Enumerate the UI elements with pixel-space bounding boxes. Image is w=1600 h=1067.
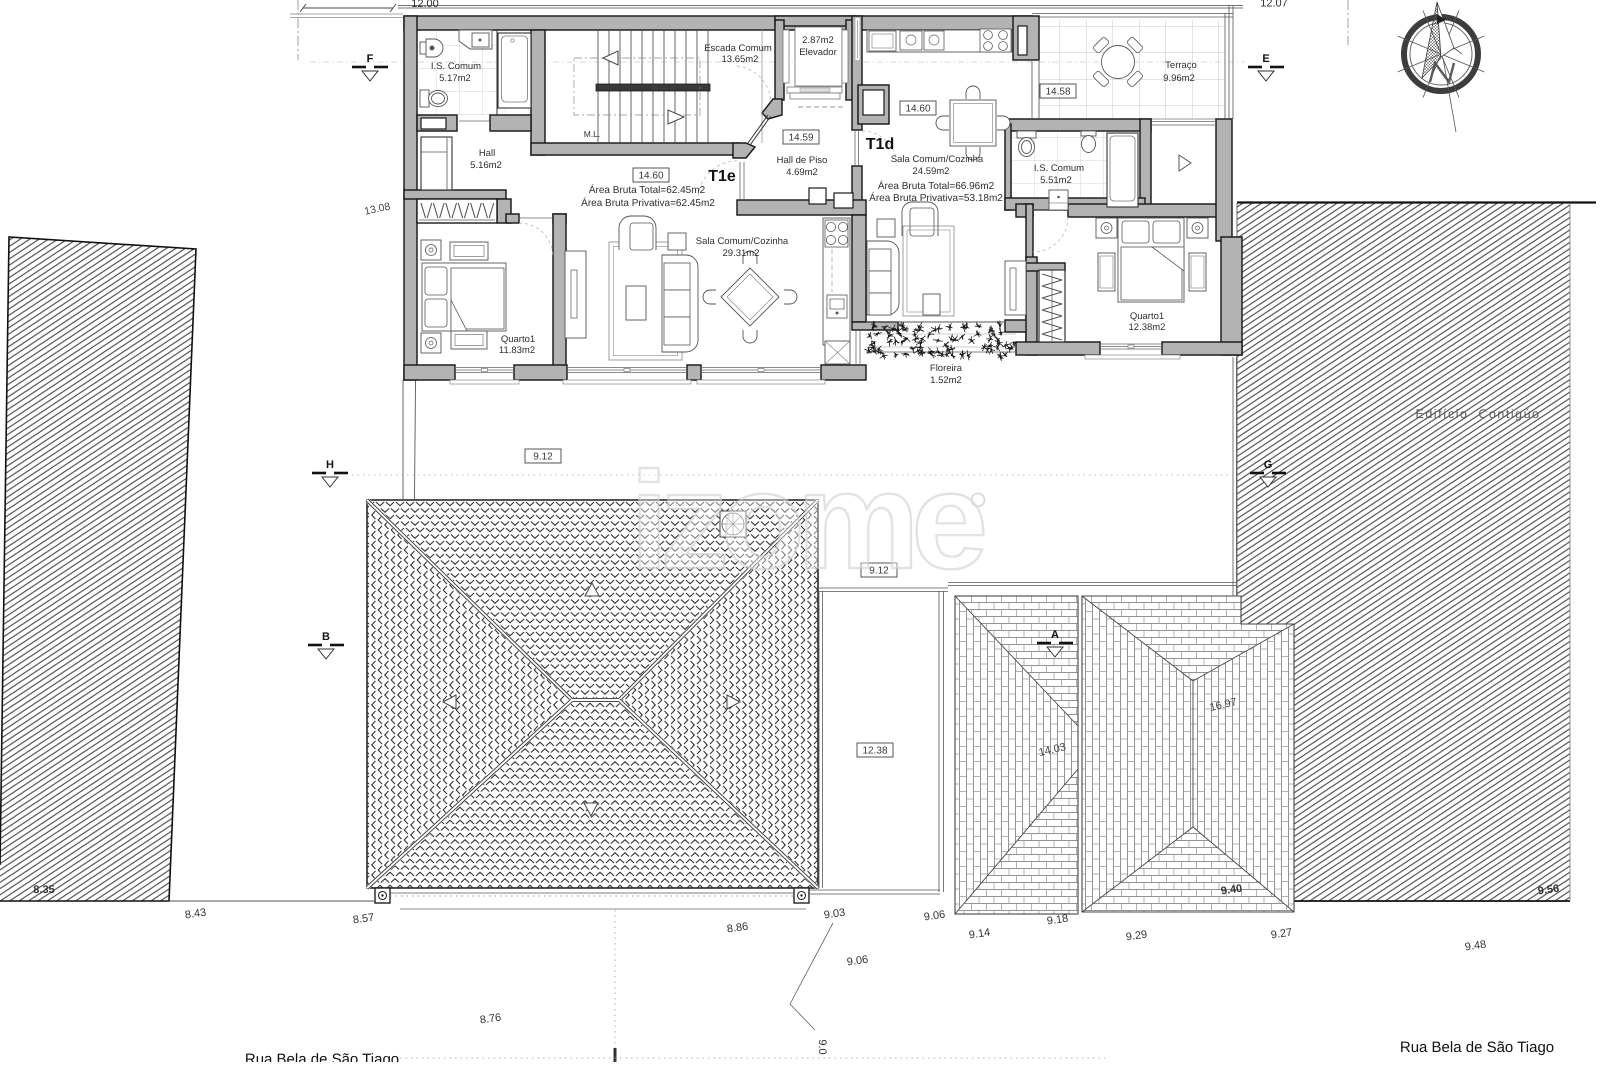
- svg-text:E: E: [1262, 53, 1269, 65]
- svg-text:Hall de Piso: Hall de Piso: [777, 155, 828, 166]
- svg-text:Edifício Contigúo: Edifício Contigúo: [1416, 407, 1541, 421]
- svg-text:9.0: 9.0: [816, 1039, 828, 1054]
- svg-text:11.83m2: 11.83m2: [499, 345, 535, 356]
- svg-text:G: G: [1264, 459, 1273, 471]
- svg-text:9.96m2: 9.96m2: [1163, 73, 1195, 84]
- svg-text:9.12: 9.12: [533, 452, 553, 463]
- svg-text:14.60: 14.60: [905, 104, 930, 115]
- svg-text:B: B: [322, 631, 330, 643]
- svg-text:5.51m2: 5.51m2: [1040, 175, 1072, 186]
- svg-text:Rua Bela de São Tiago: Rua Bela de São Tiago: [1400, 1039, 1554, 1056]
- svg-text:Sala Comum/Cozinha: Sala Comum/Cozinha: [891, 154, 984, 165]
- svg-text:Quarto1: Quarto1: [1130, 311, 1164, 322]
- svg-text:Quarto1: Quarto1: [501, 334, 535, 345]
- svg-text:Rua Bela de São Tiago: Rua Bela de São Tiago: [245, 1051, 399, 1062]
- svg-text:5.17m2: 5.17m2: [439, 73, 471, 84]
- svg-text:Área Bruta Privativa=53.18m2: Área Bruta Privativa=53.18m2: [869, 192, 1003, 204]
- svg-text:2.87m2: 2.87m2: [802, 35, 834, 46]
- svg-text:14.60: 14.60: [638, 171, 663, 182]
- svg-text:13.65m2: 13.65m2: [722, 54, 759, 65]
- svg-text:8.35: 8.35: [33, 884, 54, 896]
- svg-text:Área Bruta Privativa=62.45m2: Área Bruta Privativa=62.45m2: [581, 197, 715, 209]
- svg-text:Floreira: Floreira: [930, 363, 963, 374]
- svg-text:A: A: [1051, 629, 1059, 641]
- svg-text:T1d: T1d: [866, 136, 894, 153]
- svg-text:F: F: [367, 53, 374, 65]
- svg-text:5.16m2: 5.16m2: [470, 160, 502, 171]
- svg-text:1.52m2: 1.52m2: [930, 375, 962, 386]
- svg-text:Sala Comum/Cozinha: Sala Comum/Cozinha: [696, 236, 789, 247]
- svg-text:12.00: 12.00: [411, 0, 439, 10]
- svg-text:Área Bruta Total=62.45m2: Área Bruta Total=62.45m2: [589, 184, 706, 196]
- svg-text:I.S. Comum: I.S. Comum: [1034, 163, 1084, 174]
- svg-text:12.38: 12.38: [862, 746, 887, 757]
- svg-text:24.59m2: 24.59m2: [913, 166, 950, 177]
- svg-text:T1e: T1e: [708, 168, 736, 185]
- svg-text:M.L.: M.L.: [584, 129, 601, 139]
- svg-text:I.S. Comum: I.S. Comum: [431, 61, 481, 72]
- svg-text:Área Bruta Total=66.96m2: Área Bruta Total=66.96m2: [878, 180, 995, 192]
- svg-text:izome: izome: [630, 444, 984, 598]
- svg-text:29.31m2: 29.31m2: [723, 248, 760, 259]
- svg-text:12.38m2: 12.38m2: [1129, 322, 1166, 333]
- svg-text:Elevador: Elevador: [799, 47, 837, 58]
- svg-text:H: H: [326, 459, 334, 471]
- svg-text:4.69m2: 4.69m2: [786, 167, 818, 178]
- svg-text:12.07: 12.07: [1260, 0, 1288, 10]
- svg-text:Hall: Hall: [479, 148, 495, 159]
- svg-text:Terraço: Terraço: [1165, 60, 1197, 71]
- svg-text:Escada Comum: Escada Comum: [704, 43, 772, 54]
- svg-text:14.58: 14.58: [1045, 87, 1070, 98]
- svg-text:14.59: 14.59: [788, 133, 813, 144]
